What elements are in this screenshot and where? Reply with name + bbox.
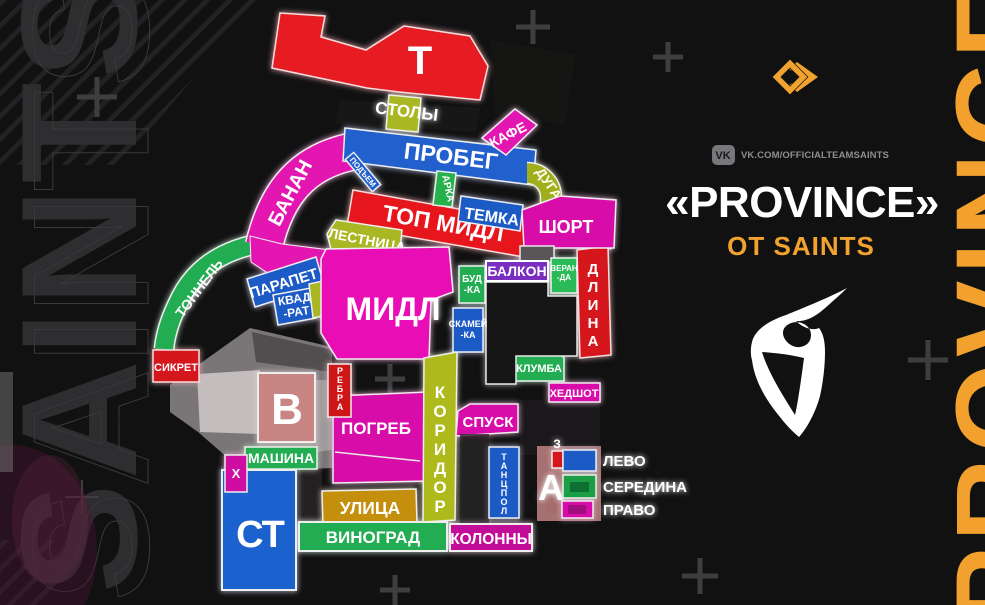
svg-text:СИКРЕТ: СИКРЕТ <box>154 362 198 374</box>
svg-text:УЛИЦА: УЛИЦА <box>340 498 401 518</box>
svg-text:КОЛОННЫ: КОЛОННЫ <box>450 531 532 548</box>
svg-text:-КА: -КА <box>461 330 476 340</box>
svg-text:ТАНЦПОЛ: ТАНЦПОЛ <box>500 452 507 516</box>
svg-text:ЛЕВО: ЛЕВО <box>603 453 646 470</box>
svg-text:СКАМЕЙ: СКАМЕЙ <box>449 318 487 329</box>
svg-text:МИДЛ: МИДЛ <box>346 291 441 327</box>
svg-text:-ДА: -ДА <box>557 273 571 282</box>
svg-text:З: З <box>553 437 561 451</box>
svg-text:PROVINCE: PROVINCE <box>933 0 985 605</box>
svg-text:БАЛКОН: БАЛКОН <box>487 263 546 279</box>
svg-text:-КА: -КА <box>464 285 481 296</box>
svg-text:ВИНОГРАД: ВИНОГРАД <box>326 528 421 547</box>
svg-text:БУД: БУД <box>462 274 482 285</box>
svg-text:ПРАВО: ПРАВО <box>603 502 656 519</box>
svg-text:ВЕРАН: ВЕРАН <box>550 264 578 273</box>
svg-text:СЕРЕДИНА: СЕРЕДИНА <box>603 479 687 496</box>
svg-text:КОРИДОР: КОРИДОР <box>433 383 446 516</box>
svg-text:VK: VK <box>715 150 730 162</box>
svg-text:ПОГРЕБ: ПОГРЕБ <box>341 419 411 438</box>
svg-text:ОТ SAINTS: ОТ SAINTS <box>727 231 875 261</box>
svg-text:В: В <box>271 385 303 434</box>
svg-text:Т: Т <box>408 39 432 83</box>
svg-text:ХЕДШОТ: ХЕДШОТ <box>550 388 599 400</box>
svg-text:ДЛИНА: ДЛИНА <box>588 261 599 350</box>
svg-text:А: А <box>538 467 564 508</box>
svg-text:МАШИНА: МАШИНА <box>248 450 314 466</box>
svg-text:VK.COM/OFFICIALTEAMSAINTS: VK.COM/OFFICIALTEAMSAINTS <box>741 150 889 161</box>
svg-text:СТ: СТ <box>236 514 284 556</box>
svg-text:СПУСК: СПУСК <box>463 414 515 431</box>
svg-text:ШОРТ: ШОРТ <box>539 217 594 237</box>
svg-text:КЛУМБА: КЛУМБА <box>516 363 562 375</box>
svg-text:Х: Х <box>232 466 241 481</box>
svg-text:РЕБРА: РЕБРА <box>337 366 344 412</box>
svg-text:«PROVINCE»: «PROVINCE» <box>665 178 939 227</box>
